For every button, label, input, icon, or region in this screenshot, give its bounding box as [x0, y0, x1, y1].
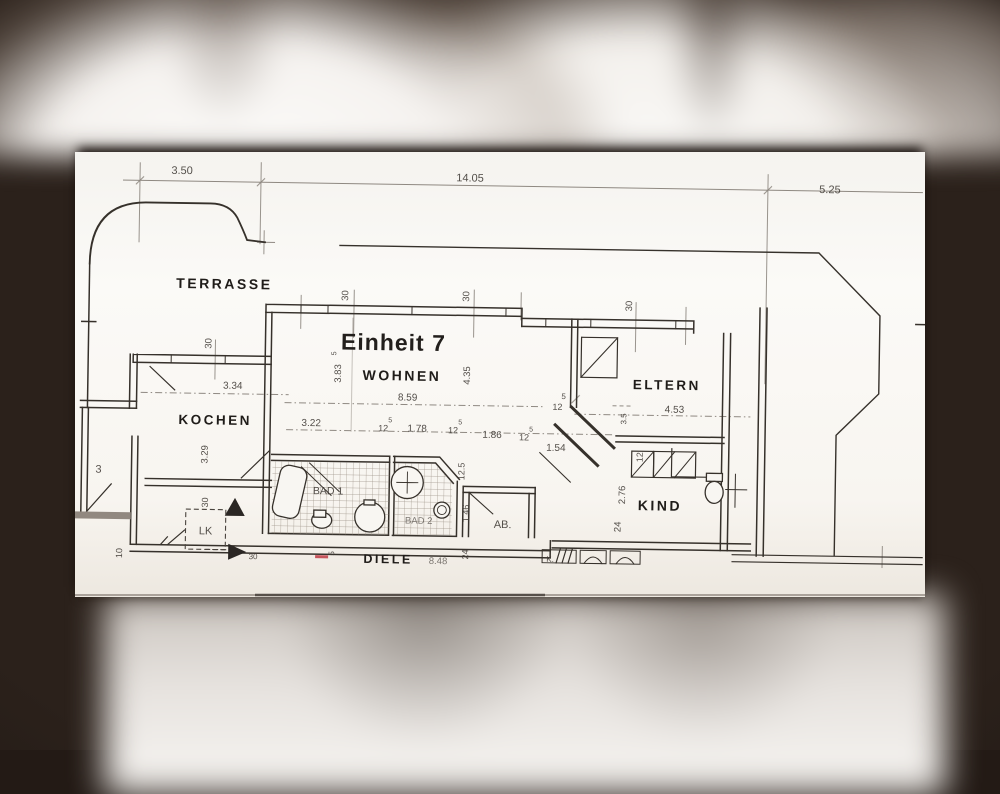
dim-12-d: 12 [552, 402, 562, 412]
dim-186: 1.86 [482, 430, 502, 441]
dim-left-10: 10 [114, 548, 124, 558]
floorplan-image: 3.50 14.05 5.25 TERRASSE Einheit 7 WOHNE… [75, 152, 925, 597]
dim-12-b: 12 [448, 425, 458, 435]
dim-top-right: 5.25 [819, 184, 841, 196]
label-k: K. [546, 555, 554, 564]
dim-kochen-depth: 3.29 [200, 445, 211, 464]
room-label-bad1: BAD 1 [313, 485, 344, 497]
labels: 3.50 14.05 5.25 TERRASSE Einheit 7 WOHNE… [94, 164, 841, 574]
toilet2-icon [706, 473, 722, 481]
dim-wohnen-width: 8.59 [398, 392, 418, 403]
dim-5-b: 5 [458, 419, 462, 426]
room-label-kochen: KOCHEN [178, 412, 252, 428]
room-label-eltern: ELTERN [633, 377, 701, 393]
label-lk: LK [199, 525, 213, 537]
room-label-bad2: BAD 2 [405, 516, 433, 527]
room-label-terrasse: TERRASSE [176, 275, 272, 293]
dim-wohnen-left: 3.83 [333, 364, 344, 383]
dim-flur-24: 24 [460, 549, 470, 559]
dim-diele-5: 5 [327, 551, 336, 556]
dim-146: 1.46 [461, 505, 471, 523]
dim-5-d: 5 [561, 392, 566, 401]
dim-30-a: 30 [340, 290, 351, 301]
dim-5-c: 5 [529, 426, 533, 433]
dim-12-c: 12 [519, 432, 529, 442]
dim-sup5-a: 5 [331, 351, 338, 355]
dim-12-a: 12 [378, 423, 388, 433]
room-label-diele: DIELE [363, 552, 413, 567]
dim-30-f: 30 [249, 552, 259, 561]
sink-icon [355, 502, 385, 532]
dim-kind-12: 12 [635, 452, 645, 462]
dim-125: 12.5 [456, 463, 466, 481]
room-label-ab: AB. [494, 519, 512, 531]
room-label-kind: KIND [638, 497, 682, 514]
dim-top-mid: 14.05 [456, 172, 484, 184]
dim-322: 3.22 [301, 418, 321, 429]
dim-kind-24: 24 [613, 521, 624, 532]
dim-154: 1.54 [546, 443, 566, 454]
dim-30-b: 30 [461, 291, 472, 302]
arrow-up-icon [225, 498, 245, 516]
dim-kochen-width: 3.34 [223, 381, 243, 392]
blurred-backdrop-top [0, 0, 1000, 156]
blurred-backdrop-bottom [105, 594, 945, 794]
dim-30-d: 30 [203, 338, 214, 349]
dim-eltern-width: 4.53 [665, 405, 685, 416]
dim-178: 1.78 [407, 424, 427, 435]
walls [75, 201, 925, 568]
dim-kind-276: 2.76 [617, 486, 628, 505]
unit-label: Einheit 7 [341, 329, 446, 357]
dim-wohnen-right: 4.35 [462, 366, 473, 385]
dim-kochen-3: 3 [95, 464, 101, 476]
dim-diele-length: 8.48 [429, 556, 448, 567]
dim-5-a: 5 [388, 417, 392, 424]
dim-eltern-side: 3.5 [619, 413, 628, 425]
dim-30-c: 30 [624, 301, 635, 312]
room-label-wohnen: WOHNEN [362, 367, 441, 384]
dim-30-e: 30 [200, 497, 210, 507]
dim-top-left: 3.50 [171, 165, 193, 177]
floorplan-drawing: 3.50 14.05 5.25 TERRASSE Einheit 7 WOHNE… [75, 152, 925, 597]
